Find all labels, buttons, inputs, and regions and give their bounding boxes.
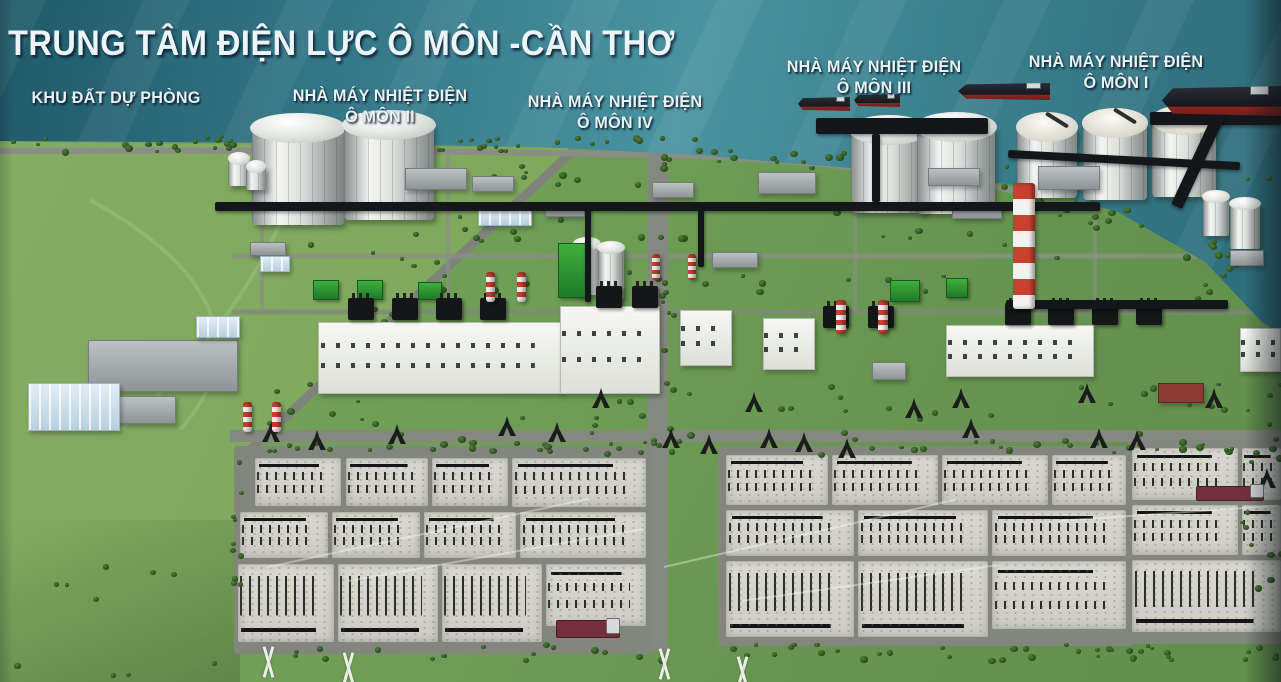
tree (1096, 655, 1100, 658)
hrsg-boiler-unit (946, 278, 968, 298)
tree (317, 646, 323, 651)
tree (658, 235, 664, 240)
tree (1126, 648, 1133, 654)
tree (604, 451, 611, 457)
tree (1187, 403, 1192, 407)
tree (617, 399, 622, 404)
tree (368, 448, 372, 451)
tree (1267, 552, 1274, 558)
tree (1108, 402, 1112, 406)
tree (636, 654, 643, 660)
tree (103, 564, 109, 569)
pipe-rack (215, 202, 1100, 211)
switchyard-pad (992, 561, 1126, 629)
turbine-hall-building (680, 310, 732, 366)
tree (1093, 225, 1100, 231)
transmission-tower (256, 646, 280, 678)
tree (627, 399, 634, 405)
tree (818, 650, 824, 656)
tree (1179, 446, 1186, 452)
hrsg-boiler-unit (313, 280, 339, 300)
blue-warehouse-building (260, 256, 290, 272)
tree (841, 151, 847, 156)
main-horizontal-road (230, 430, 1281, 442)
tree (1130, 657, 1136, 662)
tree (754, 643, 758, 646)
tree (516, 144, 520, 147)
turbine-hall-building (318, 322, 563, 394)
tree (663, 290, 669, 295)
tree (591, 647, 599, 654)
switchyard-pad (432, 458, 508, 506)
tree (495, 137, 500, 141)
small-chimney (836, 300, 846, 334)
transmission-tower (730, 656, 754, 682)
tree (489, 448, 497, 454)
tree (558, 217, 565, 223)
switchyard-pad (1052, 455, 1126, 505)
warehouse-building (928, 168, 980, 186)
tree (145, 142, 151, 147)
tree (667, 311, 671, 315)
tree (504, 149, 508, 153)
warehouse-building (872, 362, 906, 380)
tree (923, 289, 928, 294)
tree (11, 140, 15, 144)
switchyard-pad (442, 564, 542, 642)
transformer-unit (596, 286, 622, 308)
tree (669, 449, 675, 455)
tree (1276, 455, 1281, 462)
turbine-hall-building (560, 306, 660, 394)
tree (14, 663, 20, 668)
tree (1023, 646, 1029, 651)
label-o-mon-iv: NHÀ MÁY NHIỆT ĐIỆN Ô MÔN IV (516, 91, 714, 133)
tree (295, 446, 300, 450)
tree (838, 395, 843, 399)
label-o-mon-ii: NHÀ MÁY NHIỆT ĐIỆN Ô MÔN II (281, 85, 479, 127)
tree (430, 657, 435, 661)
tree (852, 437, 858, 442)
switchyard-pad (832, 455, 938, 505)
tree (469, 445, 476, 451)
tree (1058, 214, 1062, 218)
tree (828, 384, 835, 390)
tree (627, 270, 633, 275)
tree (239, 491, 244, 495)
tree (639, 413, 646, 419)
small-chimney (486, 272, 495, 302)
tree (687, 432, 695, 439)
tree (1054, 256, 1060, 261)
warehouse-building (758, 172, 816, 194)
site-title: TRUNG TÂM ĐIỆN LỰC Ô MÔN -CẦN THƠ (8, 24, 675, 64)
switchyard-pad (338, 564, 438, 642)
tree (1267, 393, 1273, 398)
tree (574, 177, 581, 183)
tree (915, 228, 923, 234)
tree (150, 570, 156, 575)
tree (1215, 252, 1223, 259)
switchyard-pad (726, 455, 828, 505)
switchyard-pad (858, 561, 988, 637)
tree (1150, 385, 1158, 391)
tree (1179, 439, 1187, 446)
tree (372, 421, 379, 427)
tree (434, 260, 440, 265)
tree (531, 652, 536, 656)
label-o-mon-iii-line2: Ô MÔN III (775, 77, 973, 98)
tree (899, 446, 903, 450)
pipe-rack (698, 207, 704, 267)
tree (228, 139, 233, 143)
small-chimney (517, 272, 526, 302)
warehouse-building (118, 396, 176, 424)
jetty-pier (816, 118, 988, 134)
tree (1267, 577, 1275, 583)
small-chimney (688, 254, 696, 280)
tree (1079, 385, 1085, 390)
tree (920, 446, 926, 451)
switchyard-pad (1132, 560, 1281, 632)
label-reserve-land-text: KHU ĐẤT DỰ PHÒNG (32, 88, 201, 107)
tree (231, 515, 236, 519)
tree (790, 151, 798, 157)
tree (809, 166, 815, 171)
tree (1033, 441, 1041, 448)
transmission-tower (652, 648, 676, 680)
tree (1243, 525, 1249, 530)
switchyard-pad (240, 512, 328, 558)
switchyard-pad (546, 564, 646, 626)
tree (1249, 460, 1254, 464)
tree (728, 149, 733, 153)
label-o-mon-iv-line2: Ô MÔN IV (516, 112, 714, 133)
tree (238, 582, 244, 587)
tree (660, 165, 668, 171)
lng-tank (851, 129, 927, 213)
tree (974, 440, 978, 444)
tree (519, 164, 525, 169)
tree (730, 155, 737, 161)
tree (911, 447, 917, 453)
omon-power-center-rendering: TRUNG TÂM ĐIỆN LỰC Ô MÔN -CẦN THƠ KHU ĐẤ… (0, 0, 1281, 682)
tree (814, 643, 819, 648)
label-o-mon-iii: NHÀ MÁY NHIỆT ĐIỆN Ô MÔN III (775, 56, 973, 98)
main-chimney (1013, 183, 1035, 309)
warehouse-building (405, 168, 467, 190)
tree (833, 210, 840, 216)
tree (860, 656, 867, 662)
tree (413, 232, 419, 237)
label-o-mon-iv-line1: NHÀ MÁY NHIỆT ĐIỆN (516, 91, 714, 112)
tree (1226, 266, 1233, 272)
tree (1006, 447, 1013, 453)
flatbed-truck (556, 620, 620, 638)
pipe-rack (872, 134, 880, 202)
tree (1249, 543, 1254, 547)
tree (193, 139, 198, 143)
transformer-unit (436, 298, 462, 320)
tree (1092, 214, 1099, 220)
tree (411, 264, 416, 269)
pipe-rack (585, 207, 591, 302)
tree (514, 236, 521, 242)
warehouse-building (712, 252, 758, 268)
tree (908, 236, 912, 239)
tree (307, 382, 313, 387)
small-tank (1230, 203, 1260, 249)
small-chimney (878, 300, 888, 334)
turbine-hall-building (1240, 328, 1281, 372)
tree (638, 234, 645, 240)
tree (458, 436, 465, 442)
tree (940, 646, 945, 650)
warehouse-building (652, 182, 694, 198)
tree (1255, 585, 1263, 591)
transformer-unit (348, 298, 374, 320)
tree (54, 582, 59, 587)
tree (661, 300, 666, 304)
tree (696, 148, 703, 154)
tree (1253, 450, 1260, 456)
tree (941, 275, 945, 278)
tree (635, 182, 641, 187)
small-chimney (652, 254, 660, 280)
label-reserve-land: KHU ĐẤT DỰ PHÒNG (23, 87, 209, 108)
switchyard-pad (424, 512, 516, 558)
switchyard-pad (520, 512, 646, 558)
tree (932, 410, 938, 415)
tree (205, 135, 210, 139)
label-o-mon-ii-line2: Ô MÔN II (281, 106, 479, 127)
tree (1138, 649, 1144, 654)
tree (1076, 649, 1081, 653)
tree (375, 647, 381, 653)
tree (1010, 646, 1018, 652)
tree (661, 348, 667, 354)
blue-warehouse-building (28, 383, 120, 431)
pipe-rack (1006, 300, 1228, 309)
tree (590, 142, 595, 146)
tree (238, 553, 245, 559)
tree (65, 583, 69, 586)
switchyard-pad (942, 455, 1048, 505)
tree (559, 172, 567, 178)
tree (93, 597, 99, 602)
tree (1203, 283, 1208, 287)
tree (1141, 391, 1147, 397)
tree (741, 274, 745, 278)
tree (520, 416, 525, 420)
tree (662, 280, 668, 285)
label-o-mon-i-line2: Ô MÔN I (1015, 72, 1216, 93)
hrsg-boiler-unit (558, 243, 588, 298)
turbine-hall-building (763, 318, 815, 370)
tree (636, 137, 644, 143)
tree (523, 658, 529, 664)
tree (1169, 658, 1174, 662)
tree (555, 140, 560, 145)
tree (1028, 654, 1036, 661)
label-o-mon-i-line1: NHÀ MÁY NHIỆT ĐIỆN (1015, 51, 1216, 72)
tree (1146, 644, 1151, 648)
tree (308, 242, 314, 247)
tree (887, 650, 894, 656)
tree (1108, 210, 1116, 217)
tree (287, 408, 295, 415)
tree (125, 145, 133, 152)
small-chimney (272, 402, 281, 432)
label-o-mon-iii-line1: NHÀ MÁY NHIỆT ĐIỆN (775, 56, 973, 77)
tree (1183, 254, 1191, 260)
tree (215, 137, 222, 143)
tree (1206, 289, 1213, 295)
small-chimney (243, 402, 252, 432)
tree (442, 274, 447, 278)
tree (1216, 383, 1220, 387)
warehouse-building (250, 242, 286, 256)
tree (583, 447, 589, 452)
tree (1095, 648, 1100, 652)
tree (462, 227, 467, 232)
tree (274, 389, 280, 394)
transformer-unit (392, 298, 418, 320)
floating-roof-mark (1113, 107, 1137, 124)
tree (430, 447, 435, 452)
tree (62, 149, 70, 156)
tree (1126, 208, 1131, 212)
turbine-hall-building (946, 325, 1094, 377)
tree (1067, 443, 1073, 448)
switchyard-pad (346, 458, 428, 506)
tree (843, 409, 848, 413)
tree (469, 138, 474, 142)
tree (661, 154, 668, 160)
switchyard-pad (238, 564, 334, 642)
tree (1243, 657, 1248, 661)
tree (1272, 655, 1279, 661)
warehouse-building (1230, 250, 1264, 266)
flatbed-truck (1196, 486, 1264, 501)
tree (293, 654, 298, 658)
tree (237, 460, 242, 464)
tree (521, 175, 527, 180)
tree (1224, 448, 1228, 452)
red-roof-building (1158, 383, 1204, 403)
hrsg-boiler-unit (890, 280, 920, 302)
cargo-ship (798, 97, 850, 111)
tree (605, 140, 610, 144)
warehouse-building (472, 176, 514, 192)
label-o-mon-ii-line1: NHÀ MÁY NHIỆT ĐIỆN (281, 85, 479, 106)
transmission-tower (336, 652, 360, 682)
tree (825, 154, 833, 161)
tree (551, 645, 556, 649)
tree (477, 145, 484, 151)
blue-warehouse-building (196, 316, 240, 338)
switchyard-pad (255, 458, 341, 506)
tree (514, 441, 519, 446)
floating-roof-mark (1045, 111, 1069, 128)
tree (400, 257, 404, 261)
tree (481, 645, 486, 649)
warehouse-building (1038, 166, 1100, 190)
label-o-mon-i: NHÀ MÁY NHIỆT ĐIỆN Ô MÔN I (1015, 51, 1216, 93)
tree (440, 441, 448, 448)
tree (677, 439, 682, 443)
small-tank (246, 166, 266, 190)
tree (772, 652, 777, 656)
tree (711, 149, 718, 155)
tree (171, 572, 177, 577)
tree (479, 239, 484, 243)
transformer-unit (632, 286, 658, 308)
tree (775, 160, 779, 164)
tree (494, 145, 498, 149)
small-tank (1203, 196, 1229, 236)
tree (172, 144, 178, 149)
